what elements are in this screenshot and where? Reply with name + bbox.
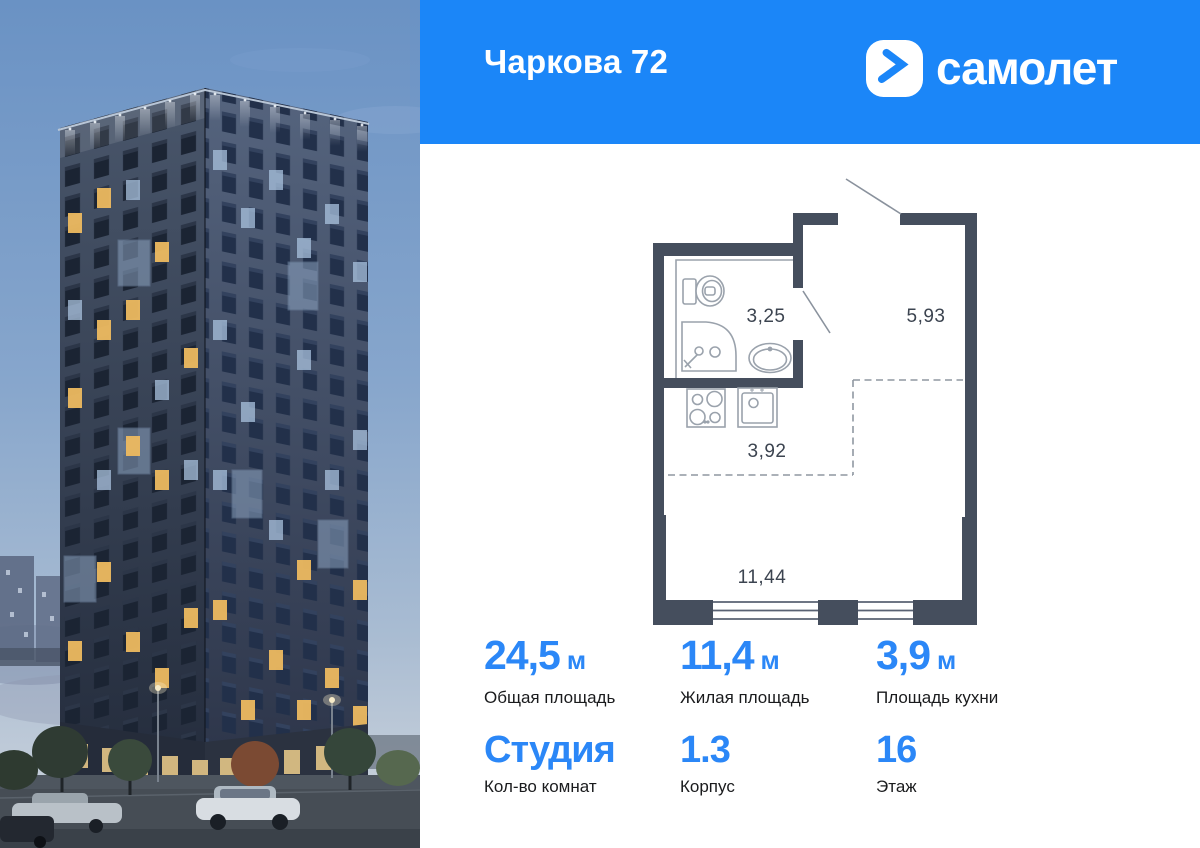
samolet-chevron-icon bbox=[866, 40, 923, 97]
stat-total-area: 24,5м Общая площадь bbox=[484, 637, 679, 707]
room-area-hallway: 5,93 bbox=[907, 306, 946, 327]
room-area-bathroom: 3,25 bbox=[747, 306, 786, 327]
toilet-icon bbox=[683, 276, 724, 306]
stat-unit: м bbox=[937, 645, 956, 675]
bathroom-door-swing bbox=[803, 291, 830, 333]
stat-value: Студия bbox=[484, 733, 679, 767]
stat-building: 1.3 Корпус bbox=[680, 733, 875, 796]
stat-value-number: 3,9 bbox=[876, 632, 930, 678]
stat-value: 16 bbox=[876, 733, 1071, 767]
stat-value: 3,9м bbox=[876, 637, 1071, 678]
stat-label: Жилая площадь bbox=[680, 689, 875, 707]
stat-value-number: 16 bbox=[876, 729, 916, 771]
stat-value-number: 11,4 bbox=[680, 632, 754, 678]
stat-unit: м bbox=[761, 645, 780, 675]
window bbox=[713, 602, 913, 619]
entry-door-swing bbox=[846, 179, 901, 214]
sink-icon bbox=[749, 344, 791, 373]
tower bbox=[58, 88, 369, 800]
stat-label: Корпус bbox=[680, 778, 875, 796]
stat-value: 11,4м bbox=[680, 637, 875, 678]
stat-label: Этаж bbox=[876, 778, 1071, 796]
stat-value-number: 24,5 bbox=[484, 632, 560, 678]
stat-rooms: Студия Кол-во комнат bbox=[484, 733, 679, 796]
stat-value: 24,5м bbox=[484, 637, 679, 678]
stat-unit: м bbox=[567, 645, 586, 675]
door-swings bbox=[803, 179, 901, 333]
samolet-logo-text: самолет bbox=[936, 40, 1117, 97]
floor-plan: 3,25 5,93 3,92 11,44 bbox=[600, 165, 1020, 640]
header: Чаркова 72 самолет bbox=[420, 0, 1200, 144]
kitchen-sink-icon bbox=[738, 388, 777, 427]
stat-value-number: 1.3 bbox=[680, 729, 730, 771]
stat-label: Общая площадь bbox=[484, 689, 679, 707]
stat-value: 1.3 bbox=[680, 733, 875, 767]
room-area-kitchen: 3,92 bbox=[748, 441, 787, 462]
building-photo bbox=[0, 0, 420, 848]
stat-value-number: Студия bbox=[484, 729, 615, 771]
stat-label: Кол-во комнат bbox=[484, 778, 679, 796]
page-title: Чаркова 72 bbox=[484, 45, 668, 79]
apartment-card: Чаркова 72 самолет bbox=[0, 0, 1200, 848]
stat-kitchen-area: 3,9м Площадь кухни bbox=[876, 637, 1071, 707]
room-area-living: 11,44 bbox=[738, 567, 787, 588]
stat-floor: 16 Этаж bbox=[876, 733, 1071, 796]
samolet-logo: самолет bbox=[866, 40, 1117, 97]
stat-living-area: 11,4м Жилая площадь bbox=[680, 637, 875, 707]
stat-label: Площадь кухни bbox=[876, 689, 1071, 707]
hob-icon bbox=[687, 389, 725, 427]
shower-icon bbox=[682, 322, 736, 371]
